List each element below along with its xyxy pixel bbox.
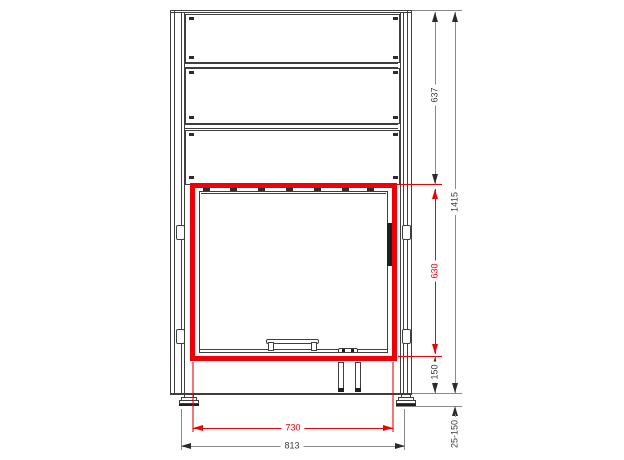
door-handle-post-right (311, 342, 317, 351)
arrowhead-right-icon (395, 443, 405, 449)
arrowhead-left-icon (193, 425, 203, 431)
door-side-latch-bar (387, 223, 392, 266)
left-hinge-clip-upper (176, 225, 185, 240)
dim-label-opening-width: 730 (281, 423, 304, 434)
extension-line-opening-right (392, 362, 394, 432)
cabinet-top-edge-outer (170, 10, 412, 11)
plinth-bracket-rail-left (338, 362, 344, 391)
arrowhead-down-icon (432, 174, 438, 184)
cabinet-base-line (170, 393, 412, 395)
cabinet-right-rail-outer-line (411, 10, 412, 394)
vent-slot (286, 188, 293, 191)
bracket-foot (338, 388, 344, 392)
left-hinge-clip-lower (176, 329, 185, 344)
arrowhead-up-icon (452, 12, 458, 22)
right-hinge-clip-upper (402, 225, 411, 240)
top-panel-3 (185, 130, 400, 185)
vent-slot (203, 188, 210, 191)
extension-line-opening-top (398, 184, 442, 185)
arrowhead-down-icon (432, 344, 438, 354)
screw-mark (393, 133, 398, 136)
top-panel-1 (185, 14, 400, 63)
screw-mark (189, 56, 194, 59)
vent-slot (230, 188, 237, 191)
dim-label-upper-section: 637 (430, 84, 441, 105)
door-bottom-latch (338, 348, 358, 353)
vent-slot (342, 188, 349, 191)
door-handle-post-left (268, 342, 274, 351)
cabinet-left-rail-inner-line (174, 10, 175, 394)
vent-slot (314, 188, 321, 191)
dim-label-foot-range: 25-150 (450, 417, 461, 451)
bracket-foot (355, 388, 361, 392)
arrowhead-down-icon (432, 383, 438, 393)
arrowhead-up-icon (432, 12, 438, 22)
arrowhead-down-icon (452, 383, 458, 393)
door-sill-line (200, 349, 387, 350)
cabinet-top-edge-inner (170, 12, 412, 13)
dim-label-plinth-height: 150 (430, 361, 441, 382)
latch-pin (342, 349, 345, 352)
arrowhead-right-icon (383, 425, 393, 431)
top-panel-2 (185, 68, 400, 124)
screw-mark (393, 56, 398, 59)
cabinet-left-rail-outer-line (170, 10, 171, 394)
panel-separator-2 (185, 124, 398, 129)
screw-mark (393, 71, 398, 74)
dim-label-total-height: 1415 (450, 189, 461, 215)
dim-label-opening-height: 630 (430, 260, 441, 281)
screw-mark (189, 133, 194, 136)
vent-slot (367, 188, 374, 191)
arrowhead-left-icon (181, 443, 191, 449)
screw-mark (393, 176, 398, 179)
vent-slot (258, 188, 265, 191)
extension-line-base (412, 393, 462, 394)
extension-line-top (412, 10, 462, 11)
technical-drawing-canvas: 637 630 150 1415 25-150 730 813 (0, 0, 624, 460)
screw-mark (189, 71, 194, 74)
screw-mark (189, 17, 194, 20)
extension-line-opening-left (192, 362, 194, 432)
screw-mark (393, 17, 398, 20)
glass-door-outline (199, 191, 388, 353)
arrowhead-up-icon (432, 189, 438, 199)
right-hinge-clip-lower (402, 329, 411, 344)
latch-pin (351, 349, 354, 352)
dim-label-body-width: 813 (280, 441, 303, 452)
screw-mark (189, 116, 194, 119)
plinth-bracket-rail-right (355, 362, 361, 391)
screw-mark (393, 116, 398, 119)
door-top-inner-line (201, 193, 386, 194)
left-foot-base (179, 404, 199, 406)
cabinet-right-wall-inner-line (400, 12, 401, 394)
screw-mark (189, 176, 194, 179)
